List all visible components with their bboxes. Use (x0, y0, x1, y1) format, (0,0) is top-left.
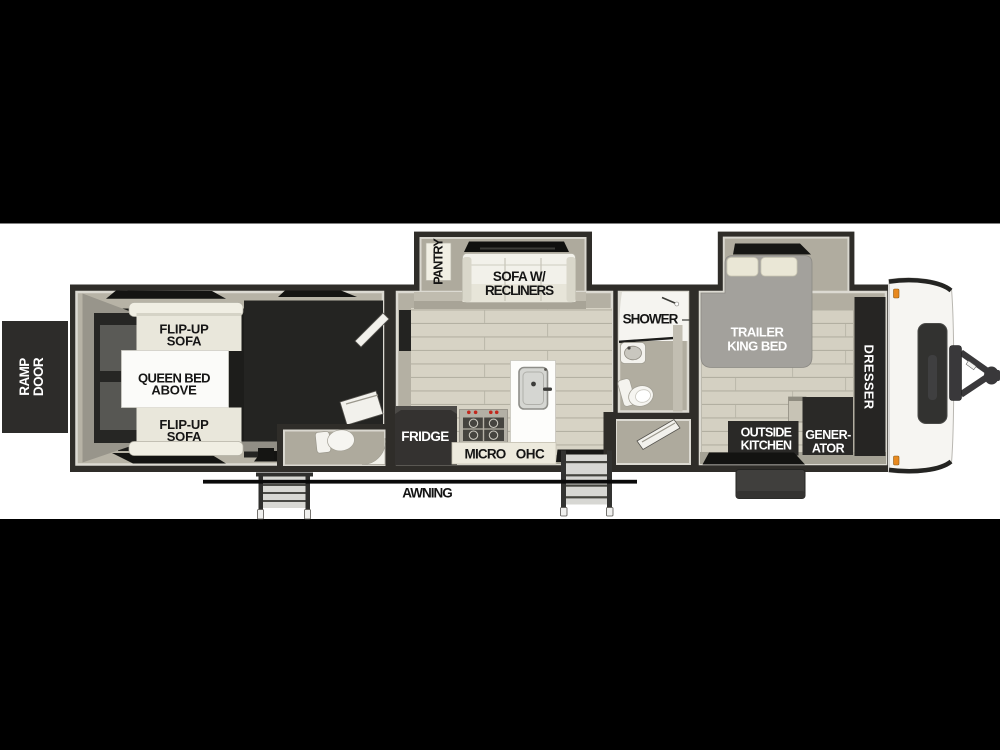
svg-text:SOFA: SOFA (167, 429, 202, 444)
svg-text:SOFA: SOFA (167, 334, 202, 349)
svg-text:DRESSER: DRESSER (862, 345, 877, 410)
svg-text:DOOR: DOOR (31, 357, 46, 396)
svg-text:RAMP: RAMP (17, 358, 32, 396)
svg-text:GENER-: GENER- (805, 428, 851, 442)
svg-text:ABOVE: ABOVE (151, 383, 197, 398)
svg-text:MICRO: MICRO (465, 447, 506, 462)
svg-text:TRAILER: TRAILER (731, 325, 785, 340)
svg-text:AWNING: AWNING (402, 486, 452, 501)
svg-text:PANTRY: PANTRY (431, 238, 446, 285)
svg-text:FRIDGE: FRIDGE (401, 429, 449, 444)
svg-text:OHC: OHC (516, 447, 545, 462)
svg-text:KITCHEN: KITCHEN (741, 439, 792, 453)
svg-text:KING BED: KING BED (727, 339, 787, 354)
svg-text:OUTSIDE: OUTSIDE (741, 426, 792, 440)
svg-text:ATOR: ATOR (812, 442, 845, 456)
svg-text:RECLINERS: RECLINERS (485, 283, 554, 298)
svg-text:SHOWER: SHOWER (623, 312, 679, 327)
svg-text:SOFA W/: SOFA W/ (493, 269, 546, 284)
